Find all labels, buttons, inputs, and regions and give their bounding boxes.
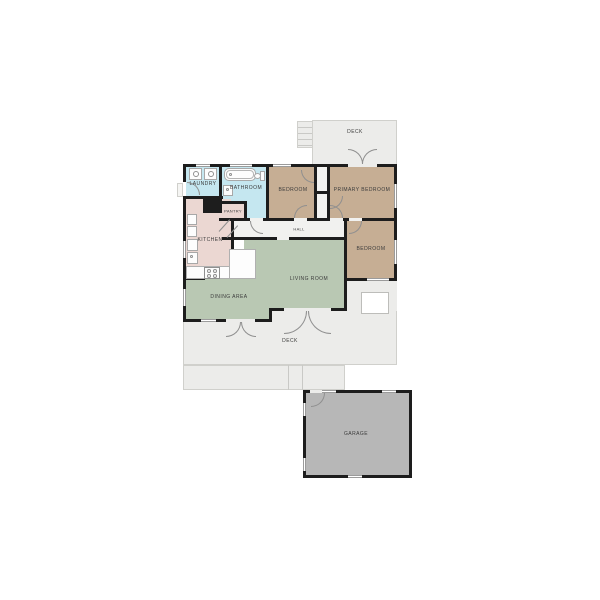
window: [183, 289, 186, 306]
window: [201, 319, 216, 322]
label-primary-bedroom: PRIMARY BEDROOM: [334, 187, 391, 193]
label-garage: GARAGE: [344, 431, 368, 437]
deck-bottom-lower: [183, 365, 345, 390]
kitchen-sink-icon: [187, 252, 198, 264]
burner: [207, 269, 211, 273]
entry-stoop: [177, 183, 183, 197]
closet-top: [317, 167, 327, 191]
window: [183, 241, 186, 258]
window: [196, 164, 210, 167]
kitchen-cabinet: [187, 226, 197, 237]
kitchen-cabinet: [187, 214, 197, 225]
toilet-bowl: [254, 173, 261, 179]
window: [273, 164, 291, 167]
burner: [213, 274, 217, 278]
window: [303, 403, 306, 416]
door-gap: [348, 164, 377, 167]
label-deck-bottom: DECK: [282, 338, 298, 344]
wall-kitchen-right: [231, 221, 234, 250]
wall-hall-top: [219, 218, 397, 221]
wall-closet-mid: [314, 191, 330, 194]
deck-step-line: [302, 365, 303, 390]
deck-step-line: [288, 365, 289, 390]
door-gap: [294, 218, 307, 221]
kitchen-peninsula: [229, 249, 256, 279]
bathtub-drain: [229, 173, 232, 176]
room-hall: [222, 221, 344, 237]
label-dining-area: DINING AREA: [210, 294, 247, 300]
wall-laundry-divider: [219, 164, 222, 200]
washer-drum: [193, 171, 199, 177]
label-bathroom: BATHROOM: [230, 185, 262, 191]
wall-block: [203, 196, 222, 213]
label-bedroom-top: BEDROOM: [279, 187, 308, 193]
window: [394, 184, 397, 208]
label-hall: HALL: [293, 227, 304, 232]
window: [367, 278, 389, 281]
label-deck-top: DECK: [347, 129, 363, 135]
window: [348, 475, 362, 478]
sink-faucet: [190, 255, 193, 258]
label-living-room: LIVING ROOM: [290, 276, 328, 282]
hall-opening: [277, 237, 289, 240]
sink-faucet: [226, 188, 229, 191]
wall-living-right: [344, 218, 347, 311]
window: [303, 458, 306, 471]
label-pantry: PANTRY: [224, 209, 242, 214]
window: [382, 390, 396, 393]
window: [394, 240, 397, 264]
fridge-icon: [187, 239, 198, 251]
deck-planter: [361, 292, 389, 314]
closet-bottom: [317, 194, 327, 218]
label-bedroom-right: BEDROOM: [357, 246, 386, 252]
burner: [213, 269, 217, 273]
label-laundry: LAUNDRY: [190, 181, 217, 187]
wall-bathroom-right: [266, 164, 269, 221]
door-gap: [183, 182, 186, 196]
window: [230, 164, 252, 167]
burner: [207, 274, 211, 278]
stove-icon: [204, 267, 220, 279]
stairs-top-icon: [297, 121, 313, 148]
door-gap: [330, 218, 343, 221]
dryer-drum: [208, 171, 214, 177]
label-kitchen: KITCHEN: [197, 237, 222, 243]
floor-plan: DECK LAUNDRY BATHROOM BEDROOM PRIMARY BE…: [0, 0, 600, 600]
